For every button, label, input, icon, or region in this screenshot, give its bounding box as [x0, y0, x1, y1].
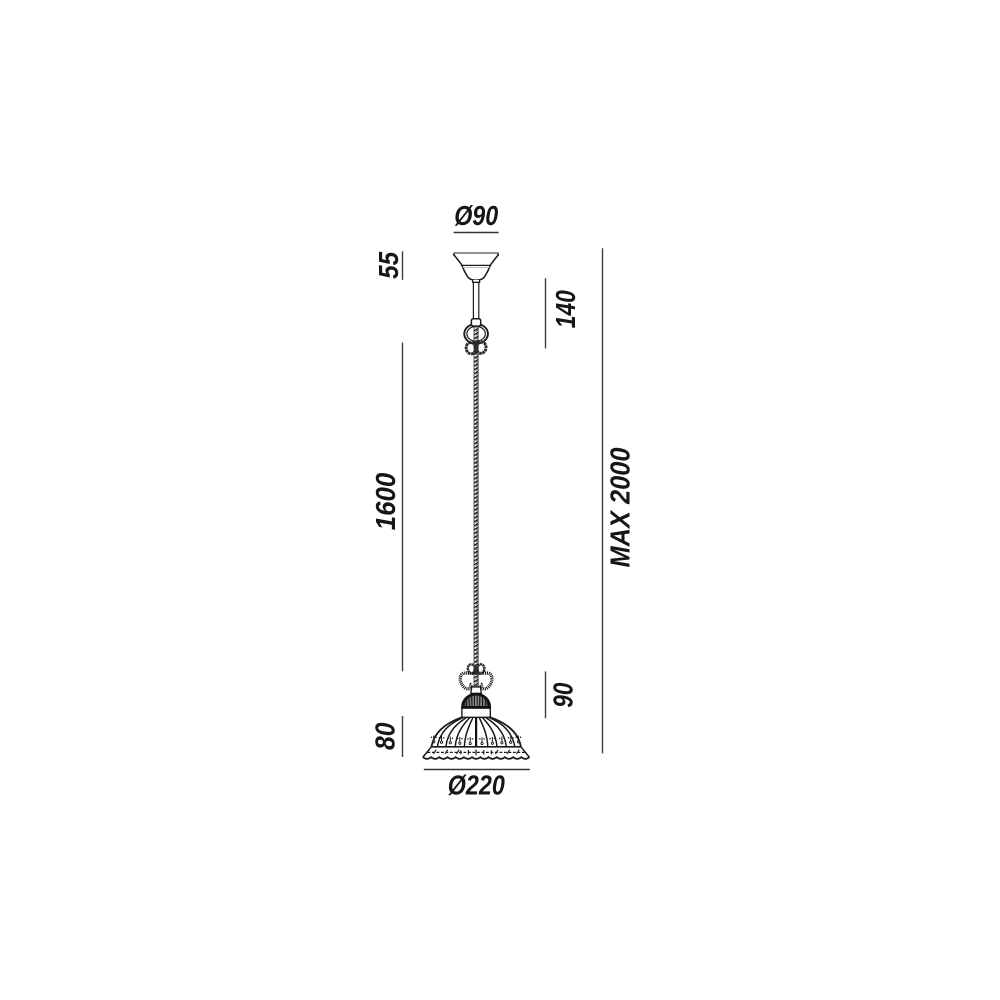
svg-text:80: 80: [370, 722, 401, 750]
svg-text:55: 55: [373, 252, 404, 279]
svg-text:1600: 1600: [370, 472, 401, 530]
svg-text:Ø220: Ø220: [448, 770, 505, 801]
svg-text:140: 140: [550, 290, 581, 328]
svg-text:MAX 2000: MAX 2000: [604, 447, 635, 567]
svg-text:Ø90: Ø90: [454, 200, 498, 231]
svg-text:90: 90: [548, 682, 579, 707]
